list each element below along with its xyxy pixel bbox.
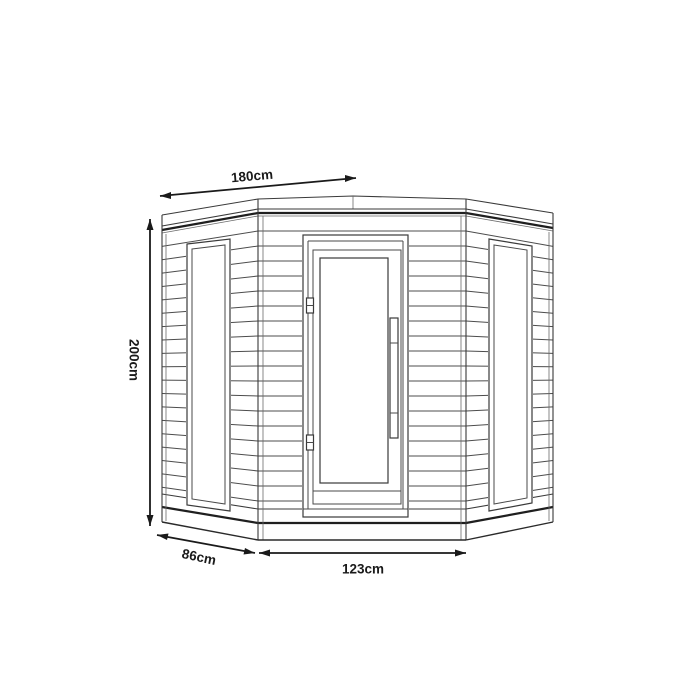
product-diagram-page: 180cm 200cm 86cm 123cm <box>0 0 700 700</box>
height-dimension-label: 200cm <box>127 339 142 381</box>
roof <box>162 196 553 233</box>
front-width-dimension-arrow <box>259 550 466 557</box>
left-window <box>186 238 231 512</box>
corner-cabin-diagram: 180cm 200cm 86cm 123cm <box>0 0 700 700</box>
height-dimension-arrow <box>147 219 154 526</box>
door-handle-icon <box>390 318 398 438</box>
door-glass <box>320 258 388 483</box>
right-window <box>488 238 533 512</box>
front-width-dimension-label: 123cm <box>342 562 384 577</box>
door <box>302 234 409 518</box>
roof-width-dimension-label: 180cm <box>230 167 273 186</box>
side-depth-dimension-label: 86cm <box>181 546 218 568</box>
